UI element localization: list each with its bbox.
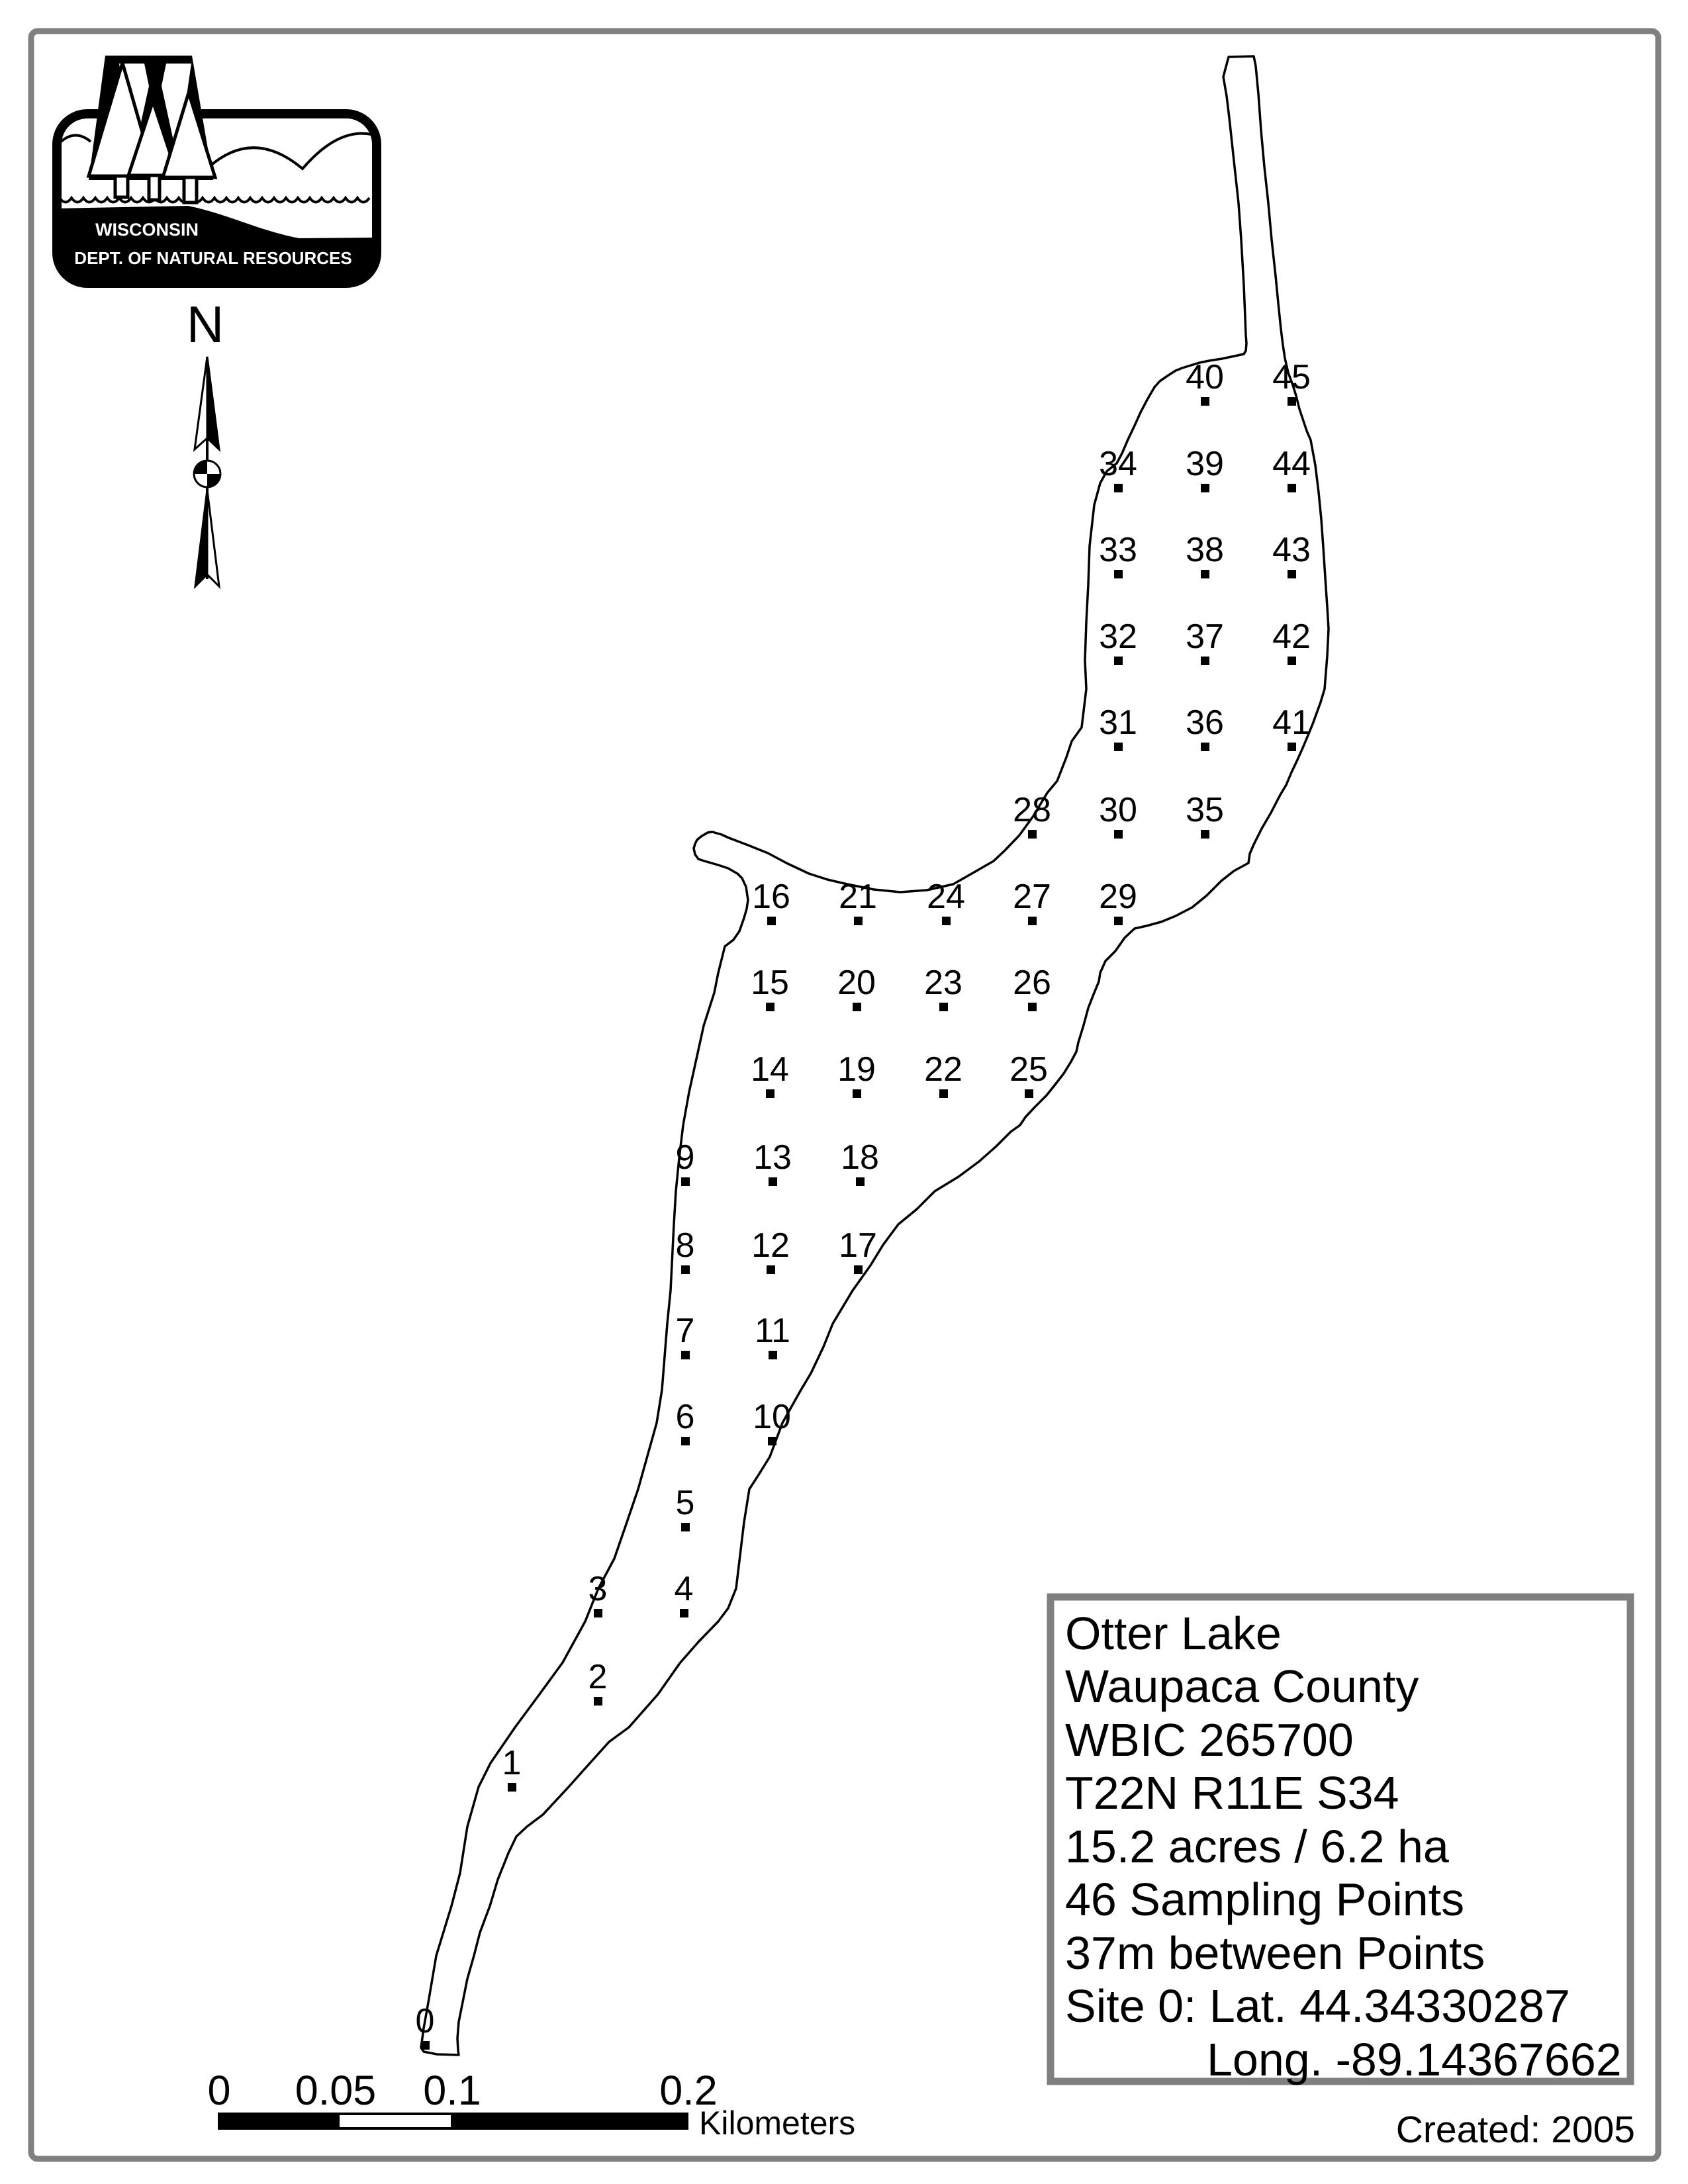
svg-text:3: 3 (588, 1570, 608, 1608)
svg-text:31: 31 (1099, 704, 1137, 742)
svg-text:T22N R11E S34: T22N R11E S34 (1065, 1767, 1399, 1819)
svg-text:9: 9 (676, 1138, 695, 1177)
svg-text:21: 21 (839, 878, 877, 916)
svg-text:23: 23 (924, 964, 962, 1002)
svg-text:7: 7 (676, 1312, 695, 1350)
svg-text:33: 33 (1099, 531, 1137, 569)
svg-text:27: 27 (1013, 878, 1051, 916)
svg-text:0: 0 (416, 2002, 435, 2040)
svg-text:Kilometers: Kilometers (699, 2105, 855, 2142)
svg-text:13: 13 (753, 1138, 792, 1177)
svg-text:40: 40 (1186, 358, 1224, 396)
svg-text:4: 4 (675, 1570, 694, 1608)
svg-text:28: 28 (1013, 791, 1051, 829)
svg-text:26: 26 (1013, 964, 1051, 1002)
svg-text:6: 6 (676, 1398, 695, 1436)
svg-text:46 Sampling Points: 46 Sampling Points (1065, 1874, 1464, 1925)
svg-text:11: 11 (755, 1312, 790, 1350)
svg-text:0.1: 0.1 (423, 2068, 481, 2114)
svg-text:WISCONSIN: WISCONSIN (95, 220, 199, 240)
svg-text:N: N (187, 295, 224, 353)
svg-text:5: 5 (676, 1484, 695, 1522)
svg-text:WBIC 265700: WBIC 265700 (1065, 1714, 1354, 1766)
svg-text:Long. -89.14367662: Long. -89.14367662 (1207, 2034, 1622, 2085)
svg-text:22: 22 (924, 1050, 962, 1089)
svg-text:19: 19 (837, 1050, 876, 1089)
svg-text:1: 1 (502, 1744, 522, 1782)
svg-text:37: 37 (1186, 617, 1224, 656)
svg-text:Waupaca County: Waupaca County (1065, 1661, 1419, 1712)
svg-text:41: 41 (1272, 704, 1311, 742)
svg-text:42: 42 (1272, 617, 1311, 656)
svg-text:36: 36 (1186, 704, 1224, 742)
svg-text:37m between Points: 37m between Points (1065, 1927, 1485, 1979)
svg-text:43: 43 (1272, 531, 1311, 569)
svg-text:34: 34 (1099, 445, 1137, 483)
svg-text:44: 44 (1272, 445, 1311, 483)
svg-text:12: 12 (751, 1226, 790, 1265)
svg-text:24: 24 (927, 878, 965, 916)
svg-text:18: 18 (841, 1138, 879, 1177)
svg-text:0.05: 0.05 (295, 2068, 377, 2114)
svg-text:29: 29 (1099, 878, 1137, 916)
svg-text:30: 30 (1099, 791, 1137, 829)
svg-text:2: 2 (588, 1658, 608, 1696)
svg-text:10: 10 (753, 1398, 791, 1436)
svg-text:39: 39 (1186, 445, 1224, 483)
svg-text:15: 15 (751, 964, 789, 1002)
svg-text:38: 38 (1186, 531, 1224, 569)
svg-text:0: 0 (207, 2068, 230, 2114)
svg-text:25: 25 (1009, 1050, 1048, 1089)
svg-text:17: 17 (839, 1226, 877, 1265)
svg-text:Created: 2005: Created: 2005 (1396, 2109, 1635, 2151)
svg-text:32: 32 (1099, 617, 1137, 656)
svg-text:16: 16 (752, 878, 790, 916)
svg-text:8: 8 (676, 1226, 695, 1265)
svg-text:15.2 acres / 6.2 ha: 15.2 acres / 6.2 ha (1065, 1821, 1449, 1872)
svg-text:20: 20 (837, 964, 876, 1002)
svg-text:Otter Lake: Otter Lake (1065, 1608, 1282, 1659)
svg-text:35: 35 (1186, 791, 1224, 829)
svg-text:14: 14 (751, 1050, 789, 1089)
svg-text:45: 45 (1272, 358, 1311, 396)
svg-text:Site 0: Lat. 44.34330287: Site 0: Lat. 44.34330287 (1065, 1980, 1570, 2032)
svg-text:DEPT. OF NATURAL RESOURCES: DEPT. OF NATURAL RESOURCES (74, 248, 352, 268)
